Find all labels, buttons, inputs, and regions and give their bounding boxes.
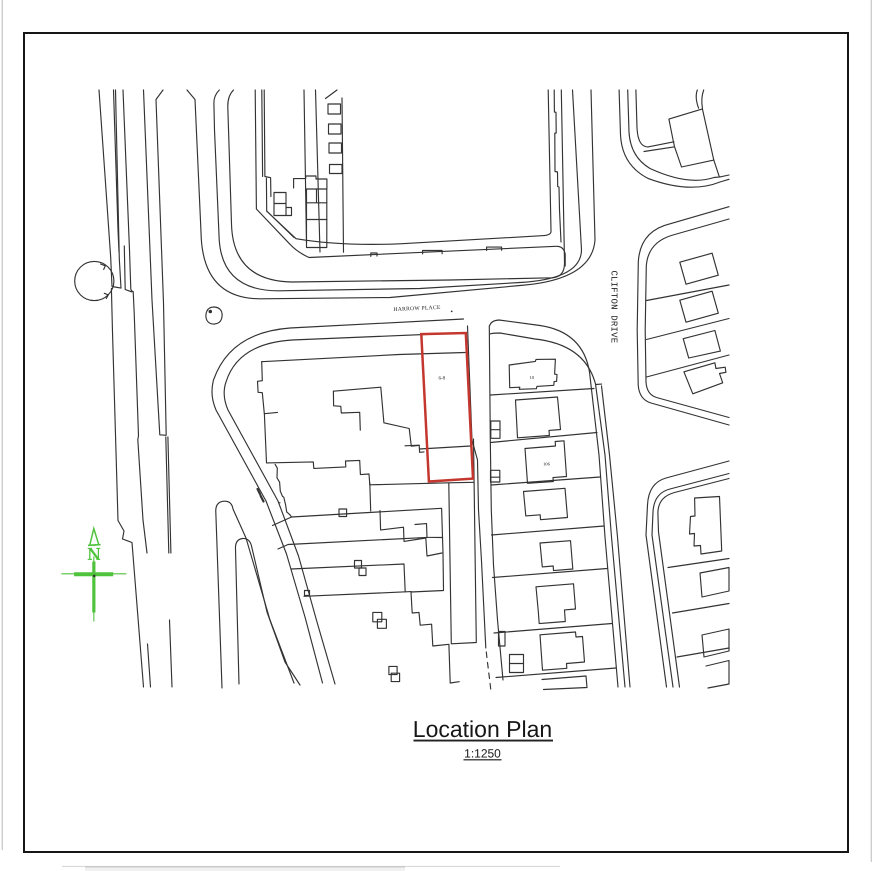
svg-text:Location Plan: Location Plan xyxy=(413,716,552,742)
svg-text:6-8: 6-8 xyxy=(439,376,446,382)
svg-text:1:1250: 1:1250 xyxy=(464,747,501,761)
svg-text:HARROW PLACE: HARROW PLACE xyxy=(393,305,441,313)
svg-text:CLIFTON DRIVE: CLIFTON DRIVE xyxy=(609,271,619,344)
svg-text:10: 10 xyxy=(530,375,535,380)
svg-text:106: 106 xyxy=(543,462,551,467)
